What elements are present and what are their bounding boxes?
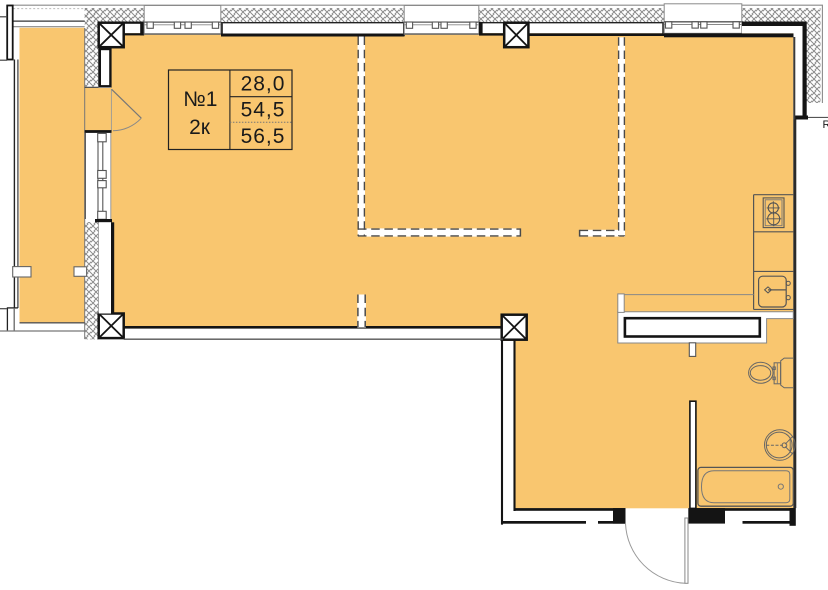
svg-text:R: R [823,119,828,131]
svg-text:№1: №1 [183,88,217,111]
svg-text:56,5: 56,5 [241,125,286,148]
svg-text:2к: 2к [189,116,211,139]
svg-text:28,0: 28,0 [241,73,286,96]
svg-text:54,5: 54,5 [241,98,286,121]
